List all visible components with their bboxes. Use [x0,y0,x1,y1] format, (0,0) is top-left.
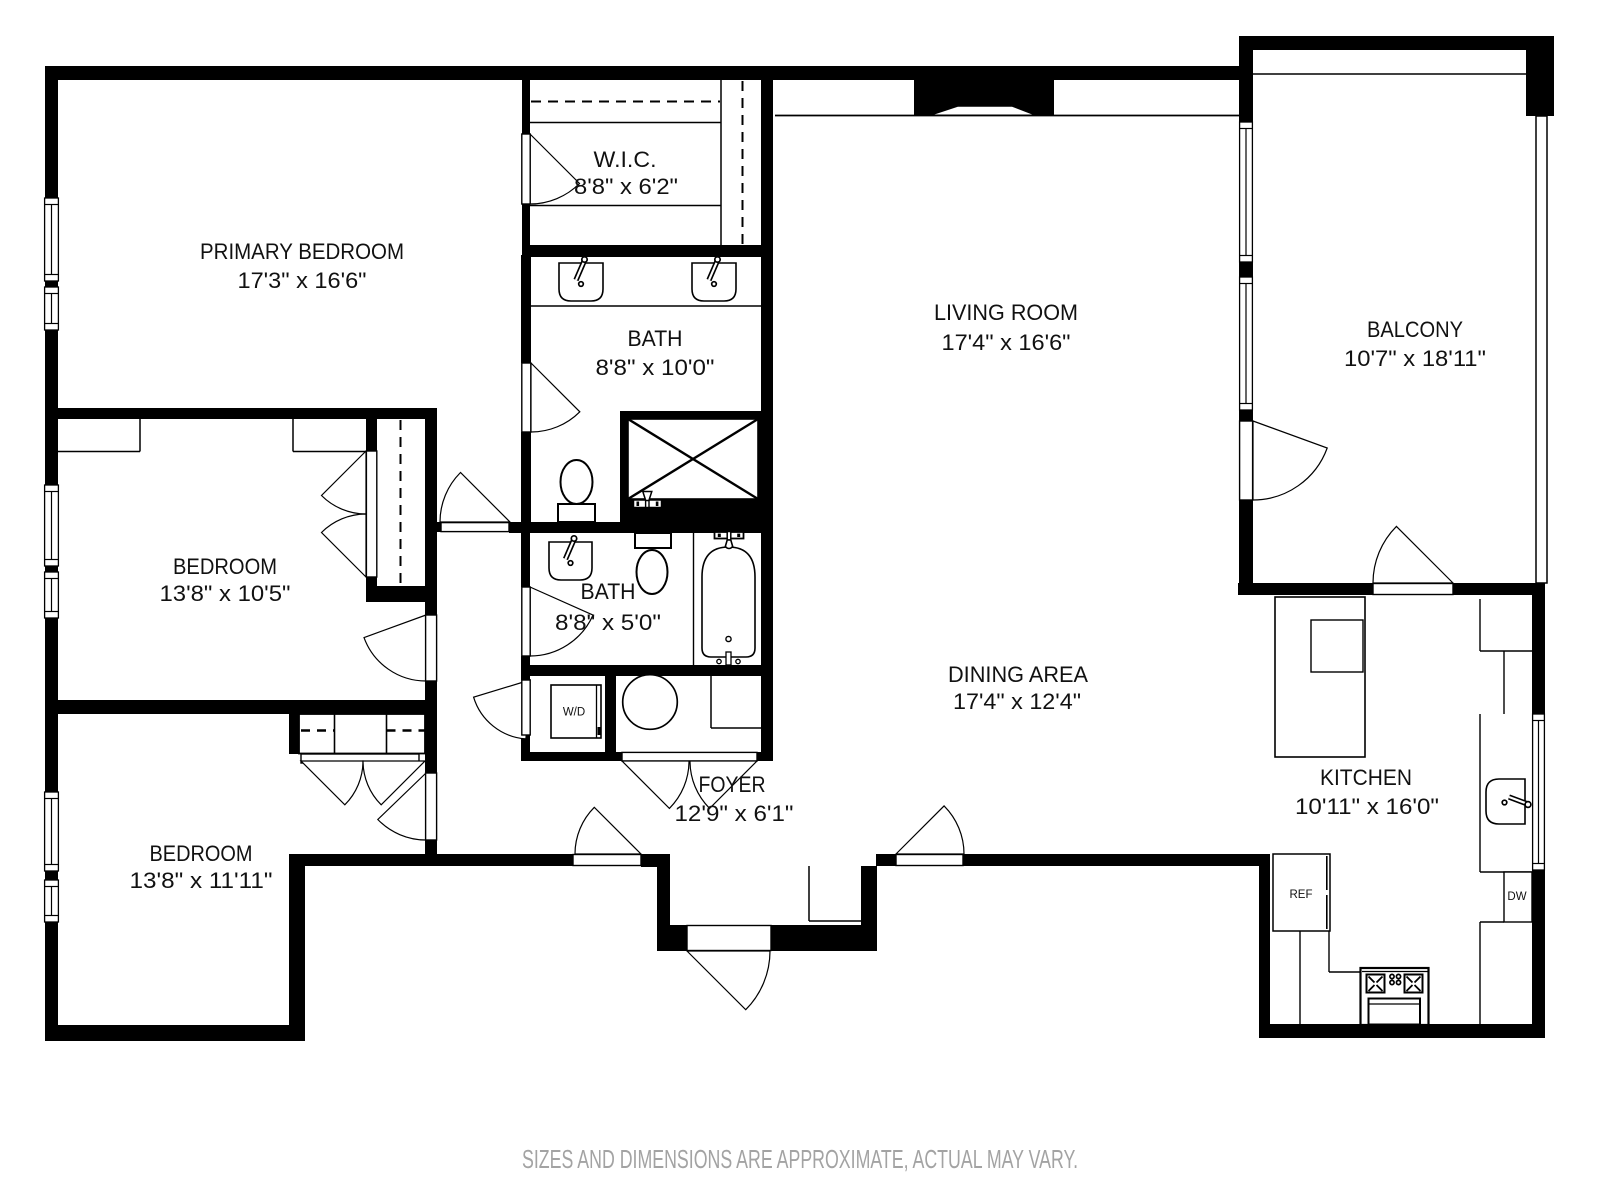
svg-text:10'11" x 16'0": 10'11" x 16'0" [1295,794,1439,819]
svg-text:REF: REF [1290,889,1313,901]
svg-text:PRIMARY BEDROOM: PRIMARY BEDROOM [200,239,404,264]
svg-text:BEDROOM: BEDROOM [173,554,277,579]
svg-text:17'3" x 16'6": 17'3" x 16'6" [238,268,367,293]
svg-text:W/D: W/D [563,707,585,719]
svg-text:8'8" x 5'0": 8'8" x 5'0" [555,610,661,635]
svg-text:13'8" x 10'5": 13'8" x 10'5" [160,581,291,606]
svg-text:17'4" x 12'4": 17'4" x 12'4" [953,689,1081,714]
svg-text:KITCHEN: KITCHEN [1320,765,1412,790]
svg-text:LIVING ROOM: LIVING ROOM [934,300,1078,325]
svg-text:BALCONY: BALCONY [1367,317,1463,342]
svg-text:FOYER: FOYER [699,772,766,797]
svg-text:W.I.C.: W.I.C. [594,147,657,172]
svg-text:8'8" x 6'2": 8'8" x 6'2" [574,174,678,199]
svg-text:BATH: BATH [581,579,636,604]
svg-text:10'7" x 18'11": 10'7" x 18'11" [1344,346,1486,371]
svg-text:13'8" x 11'11": 13'8" x 11'11" [130,868,273,893]
svg-text:8'8" x 10'0": 8'8" x 10'0" [596,355,715,380]
svg-text:DINING AREA: DINING AREA [948,662,1088,687]
svg-text:DW: DW [1507,891,1526,903]
svg-text:BEDROOM: BEDROOM [150,841,253,866]
svg-text:BATH: BATH [628,326,683,351]
svg-text:17'4" x 16'6": 17'4" x 16'6" [942,330,1071,355]
svg-text:SIZES AND DIMENSIONS ARE APPRO: SIZES AND DIMENSIONS ARE APPROXIMATE, AC… [522,1144,1078,1174]
svg-text:12'9" x 6'1": 12'9" x 6'1" [675,801,794,826]
